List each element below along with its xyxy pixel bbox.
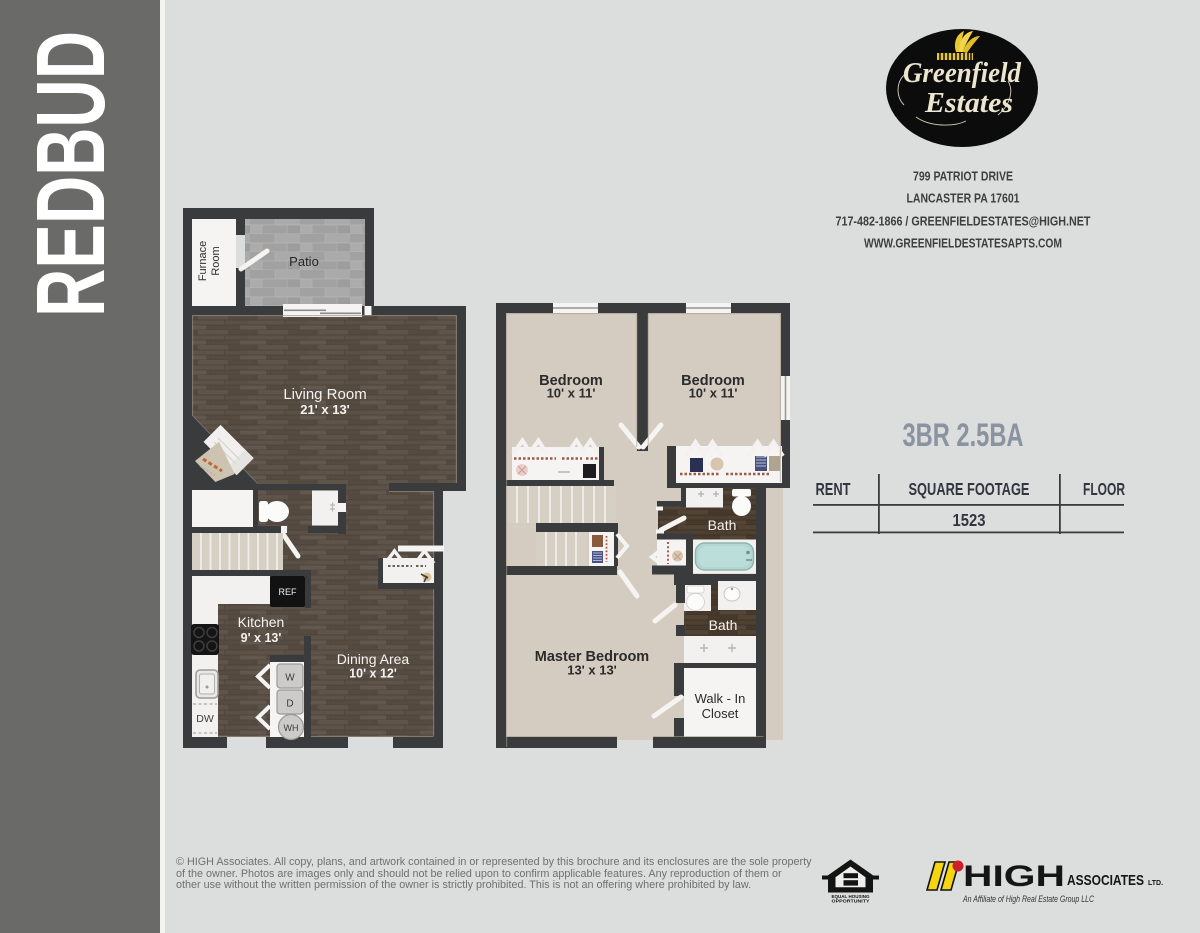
svg-text:Patio: Patio — [289, 254, 319, 269]
svg-text:RENT: RENT — [816, 479, 851, 499]
svg-text:OPPORTUNITY: OPPORTUNITY — [832, 899, 871, 905]
svg-text:10' x 11': 10' x 11' — [547, 386, 596, 401]
svg-text:D: D — [286, 699, 293, 710]
svg-text:HIGH: HIGH — [963, 860, 1065, 893]
svg-text:REDBUD: REDBUD — [16, 31, 125, 317]
svg-text:REF: REF — [279, 587, 298, 597]
svg-text:WH: WH — [284, 723, 299, 733]
svg-text:10' x 11': 10' x 11' — [689, 386, 738, 401]
svg-text:717-482-1866 / GREENFIELDESTAT: 717-482-1866 / GREENFIELDESTATES@HIGH.NE… — [836, 214, 1091, 229]
svg-text:Bath: Bath — [709, 617, 738, 633]
svg-text:DW: DW — [196, 713, 214, 725]
svg-text:Dining Area: Dining Area — [337, 651, 410, 667]
svg-text:13' x 13': 13' x 13' — [567, 663, 617, 678]
svg-text:799 PATRIOT DRIVE: 799 PATRIOT DRIVE — [913, 169, 1013, 184]
svg-text:WWW.GREENFIELDESTATESAPTS.COM: WWW.GREENFIELDESTATESAPTS.COM — [864, 236, 1062, 251]
svg-text:LTD.: LTD. — [1148, 880, 1163, 887]
svg-text:Kitchen: Kitchen — [238, 614, 285, 630]
svg-text:ASSOCIATES: ASSOCIATES — [1067, 872, 1144, 889]
svg-text:Living Room: Living Room — [283, 386, 366, 403]
svg-text:Walk - In: Walk - In — [695, 691, 746, 706]
svg-text:W: W — [285, 673, 295, 684]
svg-text:10' x 12': 10' x 12' — [349, 667, 397, 681]
svg-text:Bath: Bath — [708, 517, 737, 533]
svg-text:FLOOR: FLOOR — [1083, 479, 1125, 499]
svg-text:Greenfield: Greenfield — [903, 57, 1021, 89]
svg-text:3BR 2.5BA: 3BR 2.5BA — [903, 417, 1024, 453]
svg-text:9' x 13': 9' x 13' — [241, 631, 282, 645]
svg-text:21' x 13': 21' x 13' — [300, 402, 350, 417]
svg-text:SQUARE FOOTAGE: SQUARE FOOTAGE — [909, 479, 1030, 499]
svg-text:Estates: Estates — [924, 88, 1013, 119]
svg-text:LANCASTER PA 17601: LANCASTER PA 17601 — [907, 191, 1020, 206]
svg-text:Closet: Closet — [702, 706, 739, 721]
svg-text:An Affiliate of High Real Esta: An Affiliate of High Real Estate Group L… — [962, 894, 1094, 905]
svg-text:Furnace: Furnace — [197, 241, 209, 281]
svg-text:1523: 1523 — [953, 510, 986, 530]
svg-text:Room: Room — [210, 246, 222, 275]
